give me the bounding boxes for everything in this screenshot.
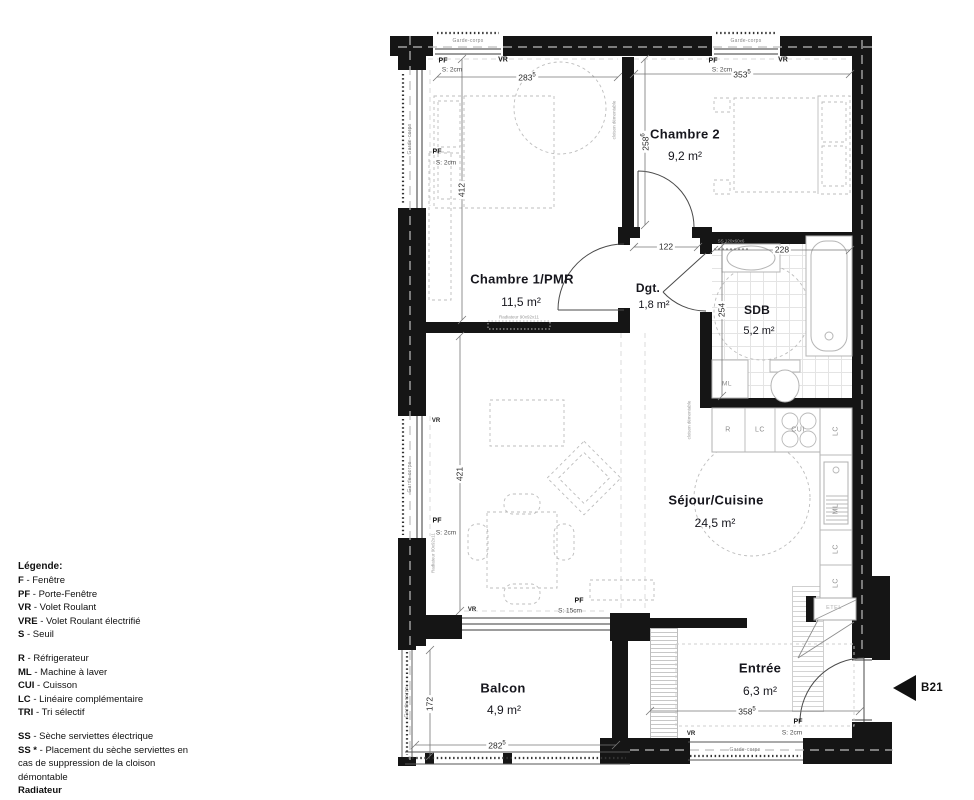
window-label-seuil: S: 2cm bbox=[712, 67, 732, 74]
kitchen-label-ml: ML bbox=[833, 504, 840, 515]
window-label-seuil: S: 2cm bbox=[442, 67, 462, 74]
room-label-balcon: Balcon bbox=[480, 681, 525, 696]
ss-note: SS 120x60x6 bbox=[718, 239, 745, 244]
kitchen-label-lc: LC bbox=[833, 426, 840, 436]
window-label-pf: PF bbox=[575, 598, 584, 605]
garde-corps-label: Garde-corps bbox=[452, 38, 483, 44]
cloison-note: cloison démontable bbox=[687, 401, 692, 440]
legend-item: ML - Machine à laver bbox=[18, 666, 196, 679]
window-label-seuil: S: 2cm bbox=[436, 160, 456, 167]
room-label-chambre2: Chambre 2 bbox=[650, 127, 720, 142]
dim-254: 254 bbox=[718, 301, 727, 319]
radiateur-note: Radiateur 90x92x11 bbox=[499, 315, 539, 320]
window-label-vr: VR bbox=[687, 731, 695, 737]
room-area-dgt: 1,8 m² bbox=[638, 299, 669, 311]
dim-122: 122 bbox=[657, 243, 675, 252]
legend-title: Légende: bbox=[18, 560, 196, 573]
room-label-sdb: SDB bbox=[744, 303, 770, 317]
radiateur-note: Radiateur 90x92x11 bbox=[431, 533, 436, 573]
window-label-vr: VR bbox=[498, 57, 508, 64]
garde-corps-label: Garde-corps bbox=[407, 123, 413, 154]
legend-item: S - Seuil bbox=[18, 628, 196, 641]
room-label-sejour: Séjour/Cuisine bbox=[668, 493, 763, 508]
sdb-ml-label: ML bbox=[722, 381, 732, 388]
dim-421: 421 bbox=[456, 465, 465, 483]
window-label-pf: PF bbox=[433, 149, 442, 156]
room-label-chambre1: Chambre 1/PMR bbox=[470, 272, 574, 287]
floorplan-page: Chambre 2 9,2 m² Chambre 1/PMR 11,5 m² D… bbox=[0, 0, 974, 800]
window-label-pf: PF bbox=[433, 518, 442, 525]
legend: Légende: F - Fenêtre PF - Porte-Fenêtre … bbox=[18, 560, 196, 798]
legend-item: SS - Sèche serviettes électrique bbox=[18, 730, 196, 743]
legend-spacer bbox=[18, 719, 196, 730]
window-label-seuil: S: 2cm bbox=[436, 530, 456, 537]
garde-corps-label: Garde-corps bbox=[404, 686, 410, 717]
sdb-fixtures bbox=[712, 236, 852, 402]
dim-353: 3535 bbox=[731, 69, 753, 80]
legend-item: F - Fenêtre bbox=[18, 574, 196, 587]
kitchen-label-fridge: R bbox=[725, 427, 731, 434]
legend-item: SS * - Placement du sèche serviettes en … bbox=[18, 744, 196, 784]
window-label-vr: VR bbox=[468, 607, 476, 613]
garde-corps-label: Garde-corps bbox=[407, 461, 413, 492]
legend-item: CUI - Cuisson bbox=[18, 679, 196, 692]
legend-item: VRE - Volet Roulant électrifié bbox=[18, 615, 196, 628]
cloison-note: cloison démontable bbox=[612, 101, 617, 140]
window-label-pf: PF bbox=[794, 719, 803, 726]
dim-282: 2825 bbox=[486, 740, 508, 751]
window-label-pf: PF bbox=[439, 58, 448, 65]
dim-172: 172 bbox=[426, 695, 435, 713]
kitchen-label-lc: LC bbox=[755, 427, 765, 434]
legend-item: VR - Volet Roulant bbox=[18, 601, 196, 614]
room-area-balcon: 4,9 m² bbox=[487, 703, 521, 717]
window-label-vr: VR bbox=[432, 418, 440, 424]
kitchen-label-cui: CUI bbox=[791, 427, 805, 434]
room-area-sejour: 24,5 m² bbox=[695, 516, 736, 530]
legend-item: R - Réfrigerateur bbox=[18, 652, 196, 665]
legend-item: PF - Porte-Fenêtre bbox=[18, 588, 196, 601]
legend-item: LC - Linéaire complémentaire bbox=[18, 693, 196, 706]
kitchen-label-lc: LC bbox=[833, 578, 840, 588]
room-area-entree: 6,3 m² bbox=[743, 684, 777, 698]
unit-label: B21 bbox=[921, 682, 943, 694]
room-area-sdb: 5,2 m² bbox=[743, 325, 774, 337]
unit-arrow-icon bbox=[893, 675, 916, 701]
window-label-seuil: S: 2cm bbox=[782, 730, 802, 737]
room-label-entree: Entrée bbox=[739, 661, 781, 676]
room-area-chambre2: 9,2 m² bbox=[668, 149, 702, 163]
window-label-vr: VR bbox=[778, 57, 788, 64]
window-label-seuil: S: 15cm bbox=[558, 608, 582, 615]
kitchen-label-lc: LC bbox=[833, 544, 840, 554]
dim-258: 2586 bbox=[640, 131, 651, 153]
window-label-pf: PF bbox=[709, 58, 718, 65]
garde-corps-label: Garde-corps bbox=[730, 38, 761, 44]
room-label-dgt: Dgt. bbox=[636, 281, 660, 295]
legend-spacer bbox=[18, 641, 196, 652]
legend-item: TRI - Tri sélectif bbox=[18, 706, 196, 719]
legend-footer: Radiateur bbox=[18, 784, 196, 797]
dim-358: 3585 bbox=[736, 706, 758, 717]
dim-228: 228 bbox=[773, 246, 791, 255]
garde-corps-label: Garde-corps bbox=[729, 747, 760, 753]
dim-283: 2835 bbox=[516, 72, 538, 83]
room-area-chambre1: 11,5 m² bbox=[501, 295, 541, 309]
dim-412: 412 bbox=[458, 181, 467, 199]
etel-label: ETEL bbox=[826, 605, 842, 611]
